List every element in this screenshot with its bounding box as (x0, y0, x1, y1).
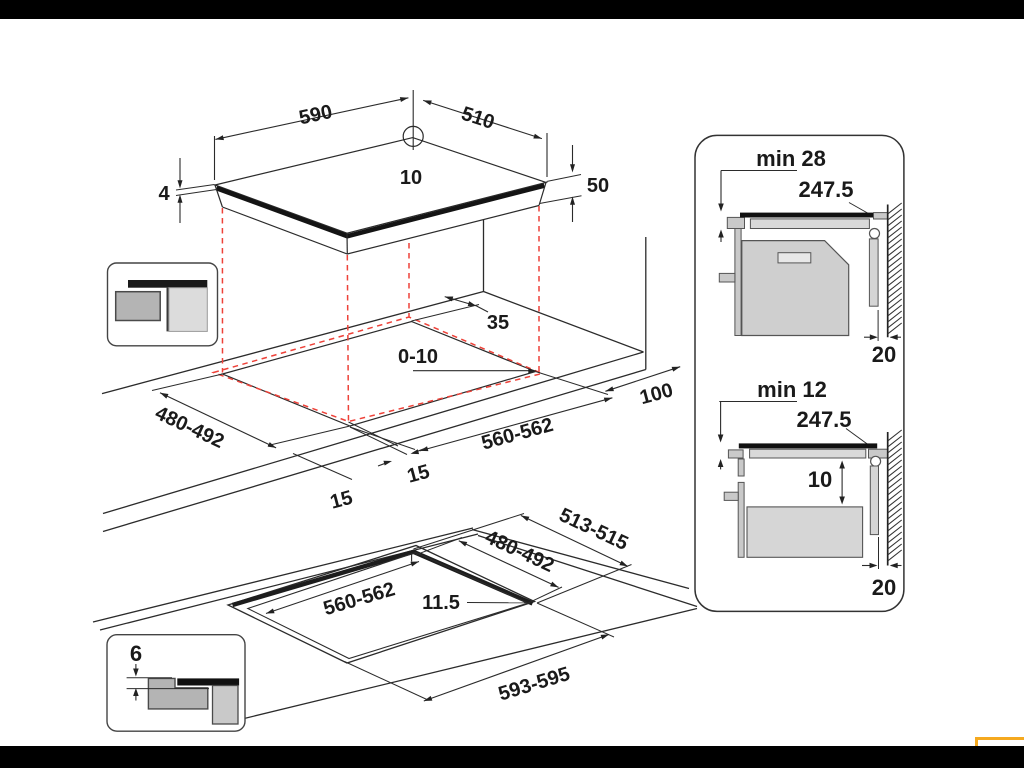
svg-text:20: 20 (872, 575, 896, 600)
svg-text:247.5: 247.5 (798, 177, 853, 202)
svg-text:35: 35 (487, 312, 509, 334)
svg-text:0-10: 0-10 (398, 346, 438, 368)
svg-text:6: 6 (130, 641, 142, 666)
svg-text:10: 10 (400, 167, 422, 189)
svg-text:4: 4 (158, 183, 170, 205)
svg-text:10: 10 (808, 467, 832, 492)
svg-text:min 12: min 12 (757, 377, 827, 402)
svg-text:20: 20 (872, 342, 896, 367)
svg-text:50: 50 (587, 175, 609, 197)
svg-text:11.5: 11.5 (422, 592, 460, 614)
svg-text:247.5: 247.5 (796, 407, 851, 432)
svg-text:min 28: min 28 (756, 146, 826, 171)
